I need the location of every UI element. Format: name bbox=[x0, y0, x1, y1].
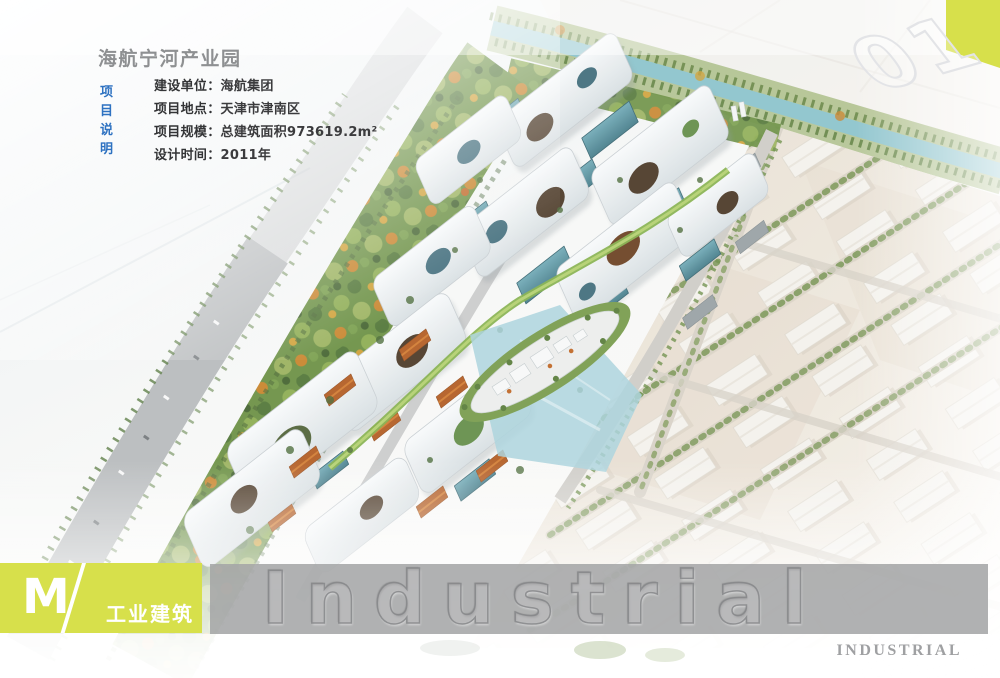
detail-label: 建设单位： bbox=[154, 79, 221, 94]
detail-value: 2011年 bbox=[221, 148, 272, 163]
detail-label: 设计时间： bbox=[154, 148, 221, 163]
portfolio-page: 海航宁河产业园 项目说明 建设单位：海航集团 项目地点：天津市津南区 项目规模：… bbox=[0, 0, 1000, 678]
detail-row-date: 设计时间：2011年 bbox=[154, 149, 474, 162]
project-details: 建设单位：海航集团 项目地点：天津市津南区 项目规模：总建筑面积973619.2… bbox=[154, 80, 474, 172]
detail-value: 总建筑面积973619.2m² bbox=[221, 125, 378, 140]
detail-value: 天津市津南区 bbox=[221, 102, 301, 117]
detail-row-scale: 项目规模：总建筑面积973619.2m² bbox=[154, 126, 474, 139]
detail-label: 项目规模： bbox=[154, 125, 221, 140]
category-badge: M 工业建筑 bbox=[0, 563, 202, 633]
detail-value: 海航集团 bbox=[221, 79, 274, 94]
watermark-bar: Industrial bbox=[210, 564, 988, 634]
detail-row-location: 项目地点：天津市津南区 bbox=[154, 103, 474, 116]
category-letter: M bbox=[22, 564, 70, 630]
watermark-text: Industrial bbox=[262, 564, 824, 634]
page-title: 海航宁河产业园 bbox=[98, 44, 242, 71]
section-label: 项目说明 bbox=[100, 81, 114, 157]
category-label: 工业建筑 bbox=[106, 598, 194, 627]
detail-label: 项目地点： bbox=[154, 102, 221, 117]
detail-row-owner: 建设单位：海航集团 bbox=[154, 80, 474, 93]
footer-caption: INDUSTRIAL bbox=[837, 642, 962, 660]
corner-number-badge: 01 bbox=[840, 0, 1000, 120]
